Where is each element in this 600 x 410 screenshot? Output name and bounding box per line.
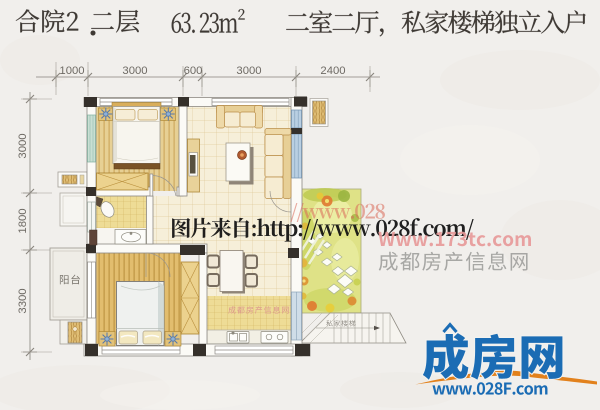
svg-text:3000: 3000 bbox=[236, 65, 261, 77]
svg-text:1000: 1000 bbox=[59, 65, 84, 77]
svg-text:2400: 2400 bbox=[320, 65, 345, 77]
svg-text:3000: 3000 bbox=[122, 65, 147, 77]
svg-text:3000: 3000 bbox=[17, 133, 29, 158]
svg-text:1800: 1800 bbox=[17, 208, 29, 233]
svg-text:600: 600 bbox=[184, 65, 203, 77]
svg-text:3300: 3300 bbox=[17, 288, 29, 313]
